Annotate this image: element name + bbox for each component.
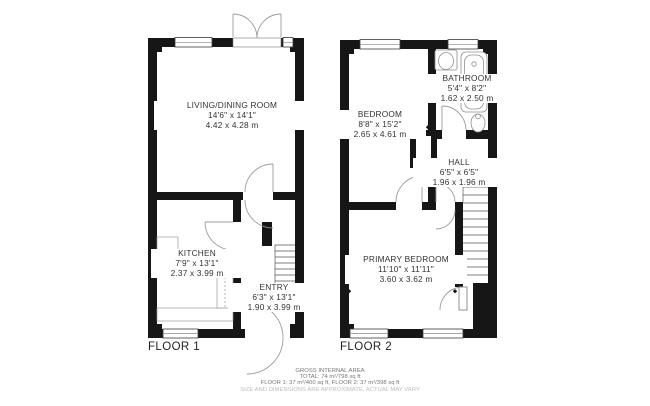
french-doors	[233, 14, 281, 47]
footer-line-disclaimer: SIZE AND DIMENSIONS ARE APPROXIMATE, ACT…	[155, 387, 505, 393]
room-label-kitchen: KITCHEN 7'9" x 13'1" 2.37 x 3.99 m	[151, 249, 243, 278]
room-label-bedroom: BEDROOM 8'8" x 15'2" 2.65 x 4.61 m	[334, 110, 426, 139]
floor-2-plan	[332, 8, 502, 380]
floor-2-title: FLOOR 2	[340, 341, 392, 353]
kitchen-door	[205, 222, 233, 250]
hall-door	[436, 183, 455, 229]
gross-internal-area-note: GROSS INTERNAL AREA TOTAL: 74 m²/798 sq …	[155, 368, 505, 393]
floor-1-plan	[140, 8, 310, 380]
room-label-bathroom: BATHROOM 5'4" x 8'2" 1.62 x 2.50 m	[421, 74, 513, 103]
room-dims-metric: 3.60 x 3.62 m	[346, 275, 466, 285]
room-dims-metric: 1.62 x 2.50 m	[422, 94, 512, 104]
primary-bedroom-door	[440, 287, 467, 310]
room-label-living-dining: LIVING/DINING ROOM 14'6" x 14'1" 4.42 x …	[154, 101, 310, 130]
sink	[435, 50, 457, 70]
room-dims-metric: 2.37 x 3.99 m	[152, 269, 242, 279]
room-dims-metric: 2.65 x 4.61 m	[335, 130, 425, 140]
room-label-primary-bedroom: PRIMARY BEDROOM 11'10" x 11'11" 3.60 x 3…	[345, 255, 467, 284]
room-label-entry: ENTRY 6'3" x 13'1" 1.90 x 3.99 m	[228, 283, 320, 312]
living-room-door	[245, 164, 273, 228]
floor-1-title: FLOOR 1	[148, 341, 200, 353]
room-label-hall: HALL 6'5" x 6'5" 1.96 x 1.96 m	[413, 158, 505, 187]
room-dims-metric: 1.90 x 3.99 m	[229, 303, 319, 313]
toilet	[471, 114, 485, 132]
floorplan-page: { "floor1": { "label": "FLOOR 1", "rooms…	[0, 0, 650, 406]
room-dims-metric: 1.96 x 1.96 m	[414, 178, 504, 188]
entry-door	[245, 302, 290, 374]
room-dims-metric: 4.42 x 4.28 m	[155, 121, 309, 131]
staircase-floor1	[275, 245, 295, 283]
